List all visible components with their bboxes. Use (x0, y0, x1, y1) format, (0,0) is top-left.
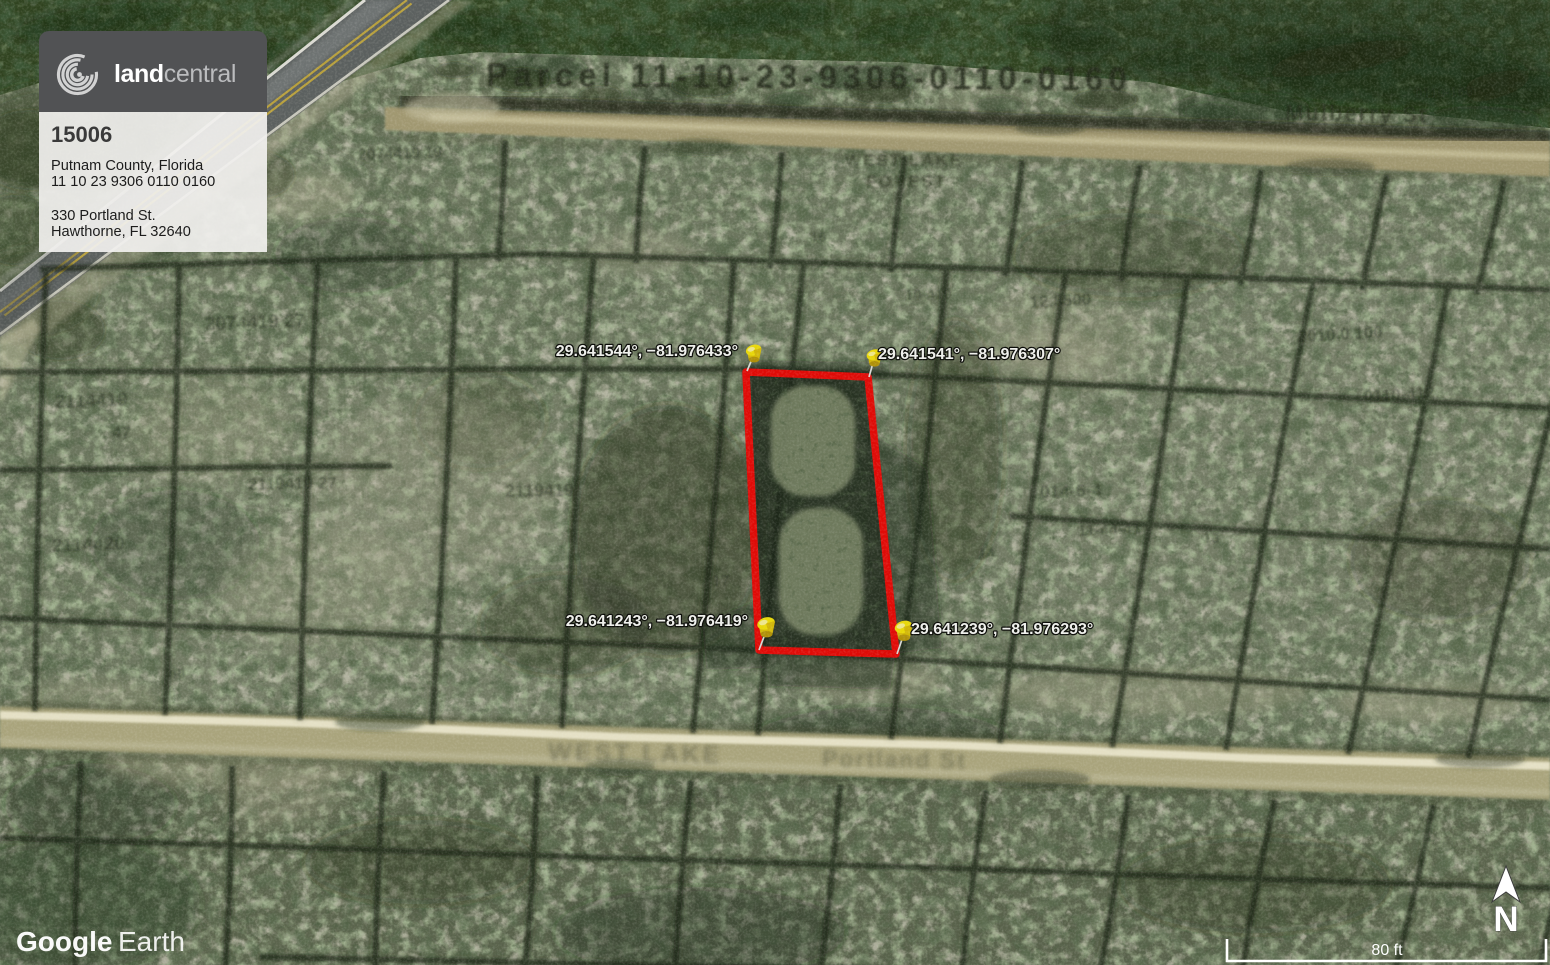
svg-text:80 ft: 80 ft (1371, 942, 1403, 959)
svg-text:Google: Google (16, 926, 112, 957)
svg-text:Earth: Earth (118, 926, 185, 957)
svg-text:N: N (1493, 900, 1518, 939)
